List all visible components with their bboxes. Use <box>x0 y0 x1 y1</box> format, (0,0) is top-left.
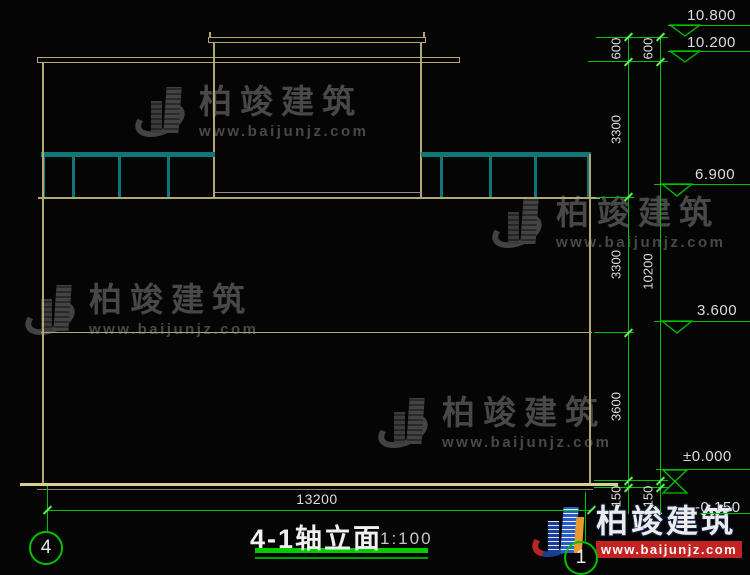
parapet-cap-slab <box>208 37 426 43</box>
axis-bubble-label: 1 <box>576 547 587 568</box>
railing-post <box>534 157 537 198</box>
elevation-label-zero: ±0.000 <box>683 448 732 465</box>
dim-text-10200: 10200 <box>641 242 656 302</box>
railing-post <box>489 157 492 198</box>
axis-bubble-1: 1 <box>564 541 598 575</box>
dim-text-13200: 13200 <box>287 491 347 507</box>
watermark-logo-icon <box>28 283 84 347</box>
drawing-scale: 1:100 <box>380 529 433 549</box>
dimension-chain-inner <box>628 36 629 514</box>
dim-text-3300: 3300 <box>609 235 624 295</box>
title-underline-thin <box>255 557 428 559</box>
railing-post <box>167 157 170 198</box>
railing-post <box>118 157 121 198</box>
zero-level-bowtie-icon <box>662 469 688 494</box>
watermark-brand: 柏竣建筑 <box>556 196 725 231</box>
extension-line <box>594 480 668 481</box>
elevation-label-10800: 10.800 <box>687 7 736 24</box>
watermark: 柏竣建筑 www.baijunjz.com <box>138 85 368 149</box>
watermark-brand: 柏竣建筑 <box>199 85 368 120</box>
watermark-brand: 柏竣建筑 <box>442 396 611 431</box>
ground-line <box>20 483 618 486</box>
dim-text-150: 150 <box>641 467 656 527</box>
bulkhead-sill-line <box>215 192 421 193</box>
drawing-title: 4-1轴立面 <box>250 517 382 556</box>
axis-line-right <box>585 492 586 541</box>
foundation-line <box>37 489 593 490</box>
watermark: 柏竣建筑 www.baijunjz.com <box>28 283 258 347</box>
overall-dimension-line <box>47 510 591 511</box>
watermark-logo-icon <box>138 85 194 149</box>
watermark-brand: 柏竣建筑 <box>89 283 258 318</box>
railing-post <box>440 157 443 198</box>
dim-text-600: 600 <box>609 19 624 79</box>
floor-slab-line-3600 <box>41 332 592 333</box>
dim-text-3600: 3600 <box>609 377 624 437</box>
elevation-label-3600: 3.600 <box>697 302 737 319</box>
axis-bubble-label: 4 <box>41 537 52 558</box>
watermark-url: www.baijunjz.com <box>199 123 368 140</box>
dim-text-600: 600 <box>641 19 656 79</box>
elevation-triangle-icon <box>661 320 693 334</box>
dimension-chain-outer <box>660 36 661 514</box>
stair-bulkhead-wall-right <box>420 42 422 198</box>
elevation-label-base: -0.150 <box>695 499 741 516</box>
dim-text-3300: 3300 <box>609 100 624 160</box>
exterior-wall-left <box>42 63 44 485</box>
exterior-wall-right <box>589 154 591 485</box>
watermark: 柏竣建筑 www.baijunjz.com <box>381 396 611 460</box>
watermark-url: www.baijunjz.com <box>596 541 742 558</box>
elevation-label-10200: 10.200 <box>687 34 736 51</box>
extension-line <box>594 487 668 488</box>
elevation-label-6900: 6.900 <box>695 166 735 183</box>
elevation-triangle-icon <box>661 183 693 197</box>
terrace-railing-top-left <box>41 152 215 157</box>
cad-drawing-canvas[interactable]: 柏竣建筑 www.baijunjz.com 柏竣建筑 www.baijunjz.… <box>0 0 750 575</box>
watermark-logo-icon <box>381 396 437 460</box>
railing-post <box>72 157 75 198</box>
axis-bubble-4: 4 <box>29 531 63 565</box>
terrace-railing-top-right <box>421 152 591 157</box>
roof-slab-10200 <box>37 57 460 63</box>
watermark-logo-icon <box>495 196 551 260</box>
dim-text-150: 150 <box>609 467 624 527</box>
floor-slab-line-6900 <box>38 197 600 199</box>
watermark-url: www.baijunjz.com <box>89 321 258 338</box>
elevation-triangle-icon <box>669 50 701 63</box>
stair-bulkhead-wall-left <box>213 42 215 198</box>
watermark-url: www.baijunjz.com <box>442 434 611 451</box>
